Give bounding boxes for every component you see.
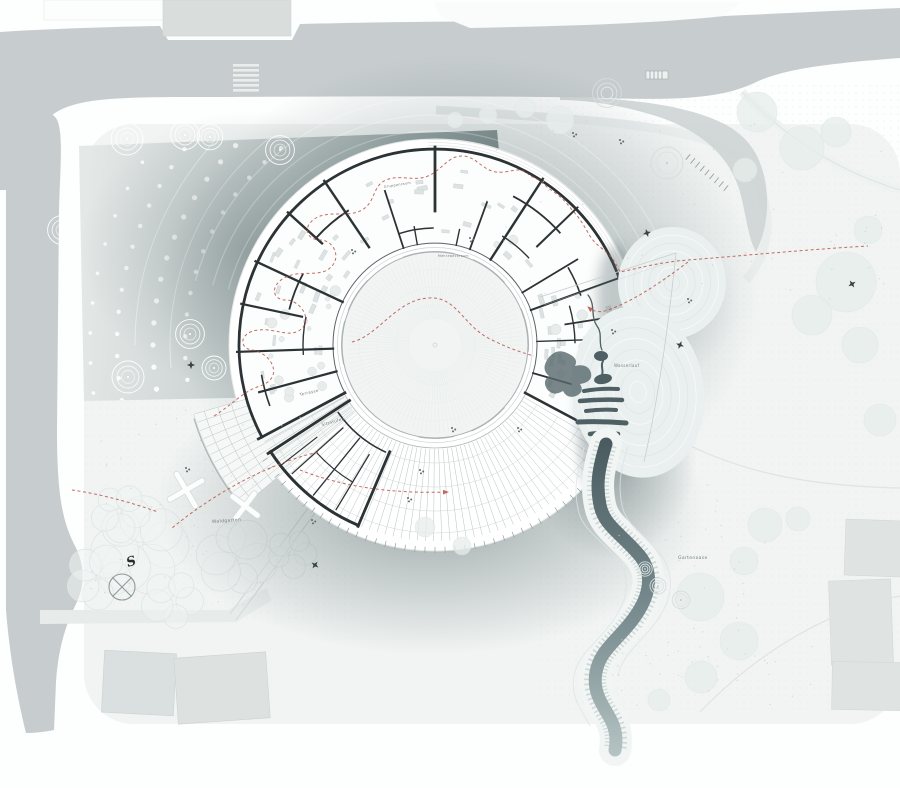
tree-icon — [730, 547, 758, 575]
building-footprint — [44, 0, 164, 20]
plant-dot — [314, 521, 316, 523]
tree-icon — [792, 295, 832, 335]
furniture — [318, 362, 325, 369]
speckle — [569, 162, 570, 163]
speckle — [742, 583, 743, 584]
building-footprint — [829, 579, 894, 665]
furniture — [545, 349, 549, 359]
speckle — [205, 459, 206, 460]
map-label: Mehrzweckraum — [438, 254, 469, 258]
speckle — [304, 564, 305, 565]
furniture — [416, 180, 423, 184]
speckle — [230, 528, 231, 529]
speckle — [693, 628, 694, 629]
furniture — [557, 338, 561, 348]
bus-stop-icon — [646, 71, 668, 79]
tree-center — [209, 136, 211, 138]
building-footprint — [844, 519, 900, 577]
plant-dot — [688, 301, 690, 303]
speckle — [772, 258, 773, 259]
tree-center — [606, 92, 608, 94]
speckle — [751, 178, 752, 179]
speckle — [714, 134, 715, 135]
speckle — [261, 547, 262, 548]
plant-dot — [422, 471, 424, 473]
speckle — [727, 649, 728, 650]
speckle — [505, 227, 506, 228]
speckle — [713, 149, 714, 150]
speckle — [271, 539, 272, 540]
speckle — [773, 209, 774, 210]
speckle — [649, 663, 650, 664]
speckle — [681, 676, 682, 677]
speckle — [810, 684, 811, 685]
speckle — [95, 575, 96, 576]
furniture — [453, 184, 463, 189]
furniture — [550, 324, 561, 335]
tree-icon — [786, 507, 810, 531]
speckle — [883, 283, 884, 284]
planting-dot — [92, 391, 96, 395]
speckle — [775, 661, 776, 662]
speckle — [671, 488, 672, 489]
speckle — [660, 674, 661, 675]
speckle — [300, 417, 301, 418]
speckle — [618, 535, 619, 536]
speckle — [218, 601, 219, 602]
plant-dot — [452, 430, 454, 432]
speckle — [716, 500, 717, 501]
tree-center — [127, 376, 129, 378]
speckle — [129, 583, 130, 584]
furniture — [285, 387, 294, 396]
plant-dot — [620, 142, 622, 144]
speckle — [736, 617, 737, 618]
plant-dot — [572, 132, 574, 134]
speckle — [530, 281, 531, 282]
speckle — [790, 289, 791, 290]
speckle — [200, 440, 201, 441]
plant-dot — [352, 252, 354, 254]
tree-icon — [515, 98, 535, 118]
speckle — [629, 137, 630, 138]
speckle — [745, 654, 746, 655]
speckle — [160, 504, 161, 505]
speckle — [717, 666, 718, 667]
tree-center — [680, 599, 682, 601]
speckle — [636, 529, 637, 530]
speckle — [499, 171, 500, 172]
speckle — [242, 424, 243, 425]
plant-dot — [575, 134, 577, 136]
plant-dot — [518, 430, 520, 432]
tree-icon — [415, 517, 435, 537]
speckle — [712, 264, 713, 265]
tree-cloud-icon — [116, 486, 142, 512]
speckle — [708, 690, 709, 691]
speckle — [641, 255, 642, 256]
furniture — [578, 322, 583, 328]
plant-dot — [470, 240, 472, 242]
speckle — [868, 267, 869, 268]
speckle — [106, 465, 107, 466]
speckle — [218, 541, 219, 542]
furniture — [577, 310, 588, 321]
tree-center — [657, 585, 659, 587]
speckle — [782, 172, 783, 173]
furniture — [308, 367, 317, 376]
speckle — [290, 579, 291, 580]
plant-dot — [351, 249, 353, 251]
speckle — [650, 165, 651, 166]
speckle — [659, 130, 660, 131]
tree-center — [213, 367, 215, 369]
speckle — [694, 565, 695, 566]
speckle — [738, 604, 739, 605]
furniture — [279, 336, 284, 341]
tree-center — [279, 149, 281, 151]
speckle — [269, 529, 270, 530]
site-plan-page: WaldgartenGartenoaseTerrasseSitzstufenWa… — [0, 0, 900, 788]
map-label: Wasserlauf — [614, 363, 640, 368]
tree-center — [61, 229, 63, 231]
speckle — [227, 537, 228, 538]
speckle — [595, 144, 596, 145]
plant-dot — [619, 139, 621, 141]
speckle — [768, 674, 769, 675]
map-label: Gartenoase — [678, 555, 708, 561]
speckle — [595, 179, 596, 180]
speckle — [612, 674, 613, 675]
speckle — [552, 130, 553, 131]
speckle — [683, 608, 684, 609]
speckle — [543, 181, 544, 182]
speckle — [769, 704, 770, 705]
furniture — [325, 297, 329, 301]
speckle — [581, 143, 582, 144]
speckle — [645, 655, 646, 656]
speckle — [95, 580, 96, 581]
furniture — [307, 326, 311, 330]
speckle — [738, 630, 739, 631]
speckle — [155, 424, 156, 425]
speckle — [879, 278, 880, 279]
speckle — [185, 410, 186, 411]
plant-dot — [454, 429, 456, 431]
speckle — [622, 653, 623, 654]
speckle — [866, 227, 867, 228]
tree-center — [666, 162, 668, 164]
plant-dot — [622, 141, 624, 143]
plant-dot — [611, 329, 613, 331]
speckle — [707, 484, 708, 485]
speckle — [875, 215, 876, 216]
tree-icon — [648, 689, 670, 711]
speckle — [202, 554, 203, 555]
speckle — [754, 123, 755, 124]
tree-icon — [685, 661, 717, 693]
tree-icon — [546, 106, 574, 134]
speckle — [294, 534, 295, 535]
speckle — [636, 705, 637, 706]
speckle — [280, 502, 281, 503]
tree-icon — [447, 112, 463, 128]
plant-dot — [612, 332, 614, 334]
speckle — [836, 235, 837, 236]
speckle — [865, 231, 866, 232]
speckle — [834, 244, 835, 245]
tree-center — [189, 333, 191, 335]
speckle — [691, 661, 692, 662]
speckle — [120, 559, 121, 560]
planting-dot — [154, 387, 159, 392]
furniture — [267, 318, 277, 328]
speckle — [240, 481, 241, 482]
plant-dot — [408, 500, 410, 502]
speckle — [255, 481, 256, 482]
speckle — [231, 475, 232, 476]
speckle — [582, 204, 583, 205]
speckle — [792, 696, 793, 697]
speckle — [496, 149, 497, 150]
speckle — [759, 203, 760, 204]
plant-dot — [520, 429, 522, 431]
plant-dot — [517, 427, 519, 429]
speckle — [751, 261, 752, 262]
speckle — [721, 536, 722, 537]
speckle — [683, 193, 684, 194]
speckle — [864, 242, 865, 243]
speckle — [829, 298, 830, 299]
speckle — [880, 151, 881, 152]
speckle — [831, 269, 832, 270]
planting-dot — [88, 331, 92, 335]
speckle — [235, 584, 236, 585]
speckle — [699, 646, 700, 647]
speckle — [194, 525, 195, 526]
speckle — [737, 680, 738, 681]
plant-dot — [573, 135, 575, 137]
tree-center — [184, 134, 186, 136]
speckle — [281, 452, 282, 453]
speckle — [811, 646, 812, 647]
speckle — [106, 464, 107, 465]
furniture — [461, 170, 468, 173]
tree-icon — [780, 126, 824, 170]
speckle — [101, 440, 102, 441]
speckle — [767, 663, 768, 664]
speckle — [130, 488, 131, 489]
speckle — [186, 536, 187, 537]
speckle — [702, 631, 703, 632]
speckle — [621, 639, 622, 640]
speckle — [151, 506, 152, 507]
speckle — [665, 539, 666, 540]
tree-icon — [748, 508, 782, 542]
tree-center — [126, 138, 128, 140]
speckle — [164, 577, 165, 578]
tree-icon — [842, 327, 878, 363]
speckle — [641, 620, 642, 621]
furniture — [326, 304, 331, 309]
speckle — [764, 542, 765, 543]
building-footprint — [163, 0, 291, 36]
plant-dot — [687, 298, 689, 300]
tree-cloud-icon — [90, 545, 123, 578]
speckle — [586, 120, 587, 121]
speckle — [594, 209, 595, 210]
speckle — [503, 240, 504, 241]
speckle — [734, 568, 735, 569]
furniture — [442, 230, 450, 233]
plant-dot — [690, 300, 692, 302]
speckle — [678, 675, 679, 676]
planting-dot — [115, 354, 119, 358]
tree-icon — [479, 106, 497, 124]
tree-icon — [453, 537, 471, 555]
speckle — [614, 547, 615, 548]
speckle — [764, 660, 765, 661]
furniture — [414, 190, 423, 195]
speckle — [138, 434, 139, 435]
plant-dot — [312, 522, 314, 524]
speckle — [653, 197, 654, 198]
tree-icon — [720, 622, 758, 660]
speckle — [667, 655, 668, 656]
plant-dot — [451, 427, 453, 429]
speckle — [743, 593, 744, 594]
speckle — [739, 562, 740, 563]
plant-dot — [185, 467, 187, 469]
speckle — [737, 673, 738, 674]
plant-dot — [410, 499, 412, 501]
plant-dot — [188, 469, 190, 471]
plant-dot — [311, 519, 313, 521]
speckle — [708, 656, 709, 657]
furniture — [319, 346, 323, 355]
speckle — [241, 454, 242, 455]
speckle — [621, 690, 622, 691]
speckle — [705, 529, 706, 530]
furniture — [318, 382, 327, 391]
tree-icon — [821, 117, 851, 147]
speckle — [625, 516, 626, 517]
site-plan-canvas: WaldgartenGartenoaseTerrasseSitzstufenWa… — [0, 0, 900, 788]
speckle — [206, 551, 207, 552]
speckle — [90, 588, 91, 589]
speckle — [91, 571, 92, 572]
speckle — [680, 536, 681, 537]
speckle — [754, 655, 755, 656]
building-footprint — [174, 652, 270, 724]
speckle — [540, 201, 541, 202]
speckle — [298, 528, 299, 529]
speckle — [252, 484, 253, 485]
speckle — [715, 511, 716, 512]
speckle — [745, 252, 746, 253]
speckle — [627, 257, 628, 258]
speckle — [290, 455, 291, 456]
speckle — [192, 545, 193, 546]
speckle — [694, 203, 695, 204]
tree-icon — [733, 158, 757, 182]
tree-icon — [864, 404, 896, 436]
plant-dot — [472, 239, 474, 241]
speckle — [641, 626, 642, 627]
plant-dot — [419, 469, 421, 471]
tree-icon — [854, 216, 882, 244]
speckle — [258, 555, 259, 556]
speckle — [668, 642, 669, 643]
speckle — [548, 190, 549, 191]
plant-dot — [407, 497, 409, 499]
plant-dot — [186, 470, 188, 472]
speckle — [197, 431, 198, 432]
speckle — [120, 458, 121, 459]
speckle — [545, 293, 546, 294]
speckle — [486, 200, 487, 201]
speckle — [317, 581, 318, 582]
speckle — [289, 428, 290, 429]
speckle — [149, 510, 150, 511]
speckle — [243, 604, 244, 605]
speckle — [717, 679, 718, 680]
building-footprint — [101, 650, 176, 716]
speckle — [830, 241, 831, 242]
tree-icon — [737, 92, 777, 132]
speckle — [704, 587, 705, 588]
speckle — [618, 675, 619, 676]
speckle — [106, 503, 107, 504]
building-footprint — [832, 661, 900, 710]
speckle — [720, 525, 721, 526]
furniture — [275, 376, 284, 385]
speckle — [104, 592, 105, 593]
speckle — [881, 227, 882, 228]
speckle — [176, 418, 177, 419]
speckle — [256, 577, 257, 578]
furniture — [269, 354, 274, 359]
plant-dot — [614, 331, 616, 333]
planting-dot — [89, 361, 93, 365]
speckle — [288, 547, 289, 548]
speckle — [678, 651, 679, 652]
plant-dot — [469, 237, 471, 239]
tree-center — [644, 568, 646, 570]
speckle — [536, 126, 537, 127]
speckle — [701, 283, 702, 284]
speckle — [617, 665, 618, 666]
plant-dot — [354, 251, 356, 253]
plant-dot — [420, 472, 422, 474]
speckle — [678, 522, 679, 523]
speckle — [281, 425, 282, 426]
speckle — [212, 471, 213, 472]
speckle — [750, 125, 751, 126]
speckle — [623, 502, 624, 503]
